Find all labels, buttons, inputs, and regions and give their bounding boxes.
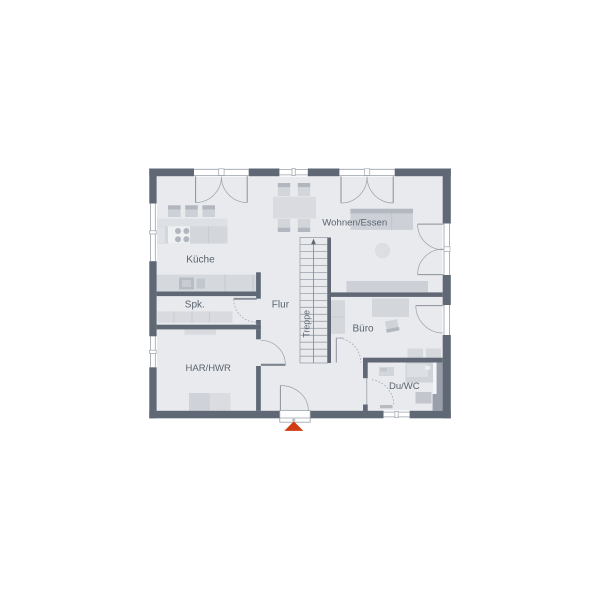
svg-text:Flur: Flur [272,300,290,311]
svg-text:HAR/HWR: HAR/HWR [186,363,232,374]
svg-text:Treppe: Treppe [302,310,312,338]
svg-text:Büro: Büro [353,323,375,334]
svg-text:Spk.: Spk. [185,300,205,311]
svg-text:Wohnen/Essen: Wohnen/Essen [322,218,387,229]
svg-text:Du/WC: Du/WC [389,381,420,392]
svg-text:Küche: Küche [186,255,215,266]
